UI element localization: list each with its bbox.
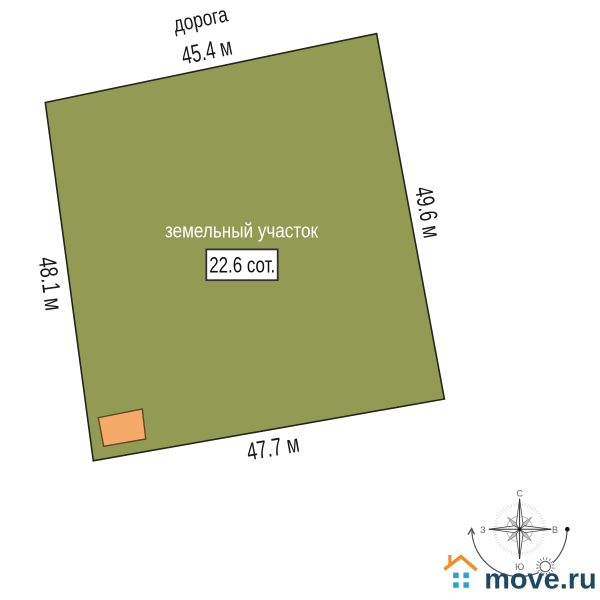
svg-text:22.6 сот.: 22.6 сот. bbox=[209, 253, 275, 278]
svg-text:move.ru: move.ru bbox=[484, 563, 597, 595]
svg-text:48.1 м: 48.1 м bbox=[33, 255, 68, 312]
svg-text:земельный участок: земельный участок bbox=[165, 221, 318, 243]
svg-text:дорога: дорога bbox=[171, 1, 231, 37]
svg-text:З: З bbox=[480, 525, 485, 535]
svg-text:47.7 м: 47.7 м bbox=[245, 430, 302, 467]
svg-text:В: В bbox=[552, 525, 558, 535]
svg-text:С: С bbox=[516, 488, 523, 498]
svg-text:49.6 м: 49.6 м bbox=[409, 184, 446, 240]
